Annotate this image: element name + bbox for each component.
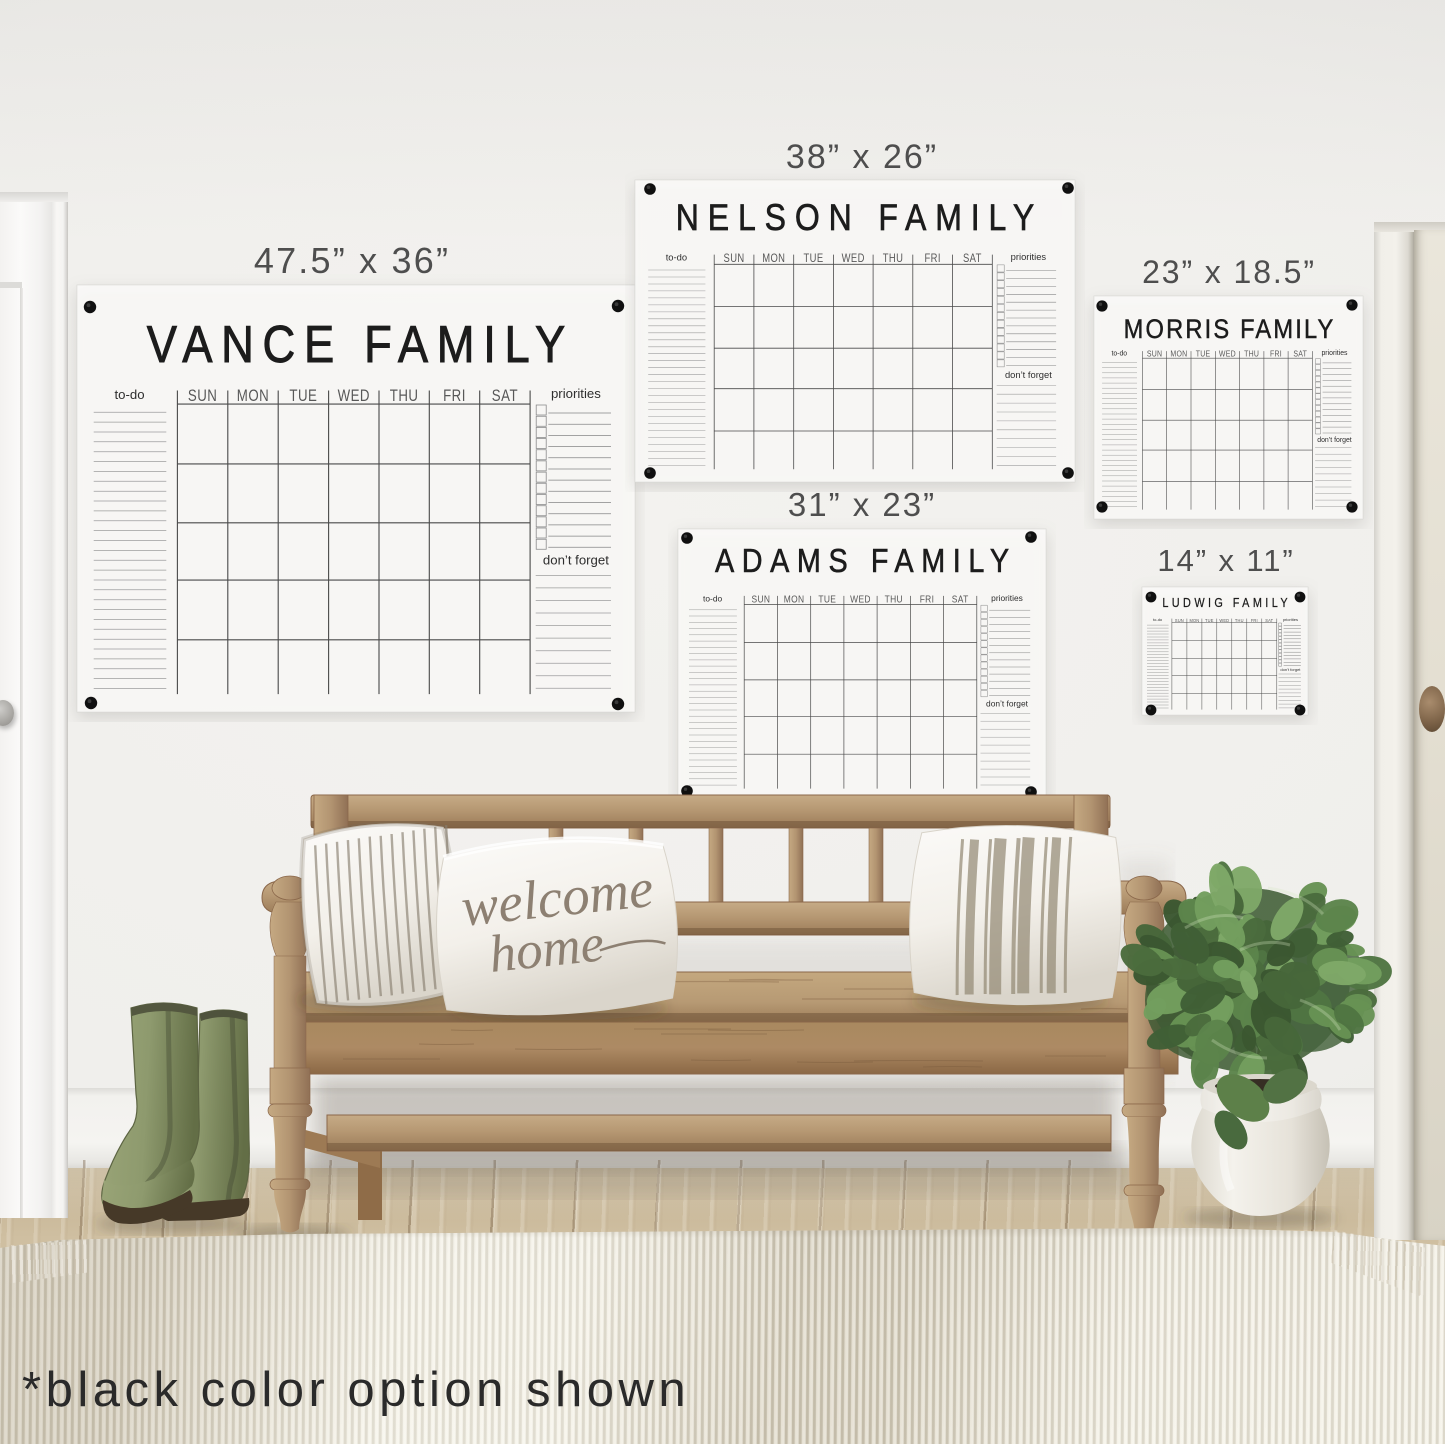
svg-text:home: home <box>486 914 606 984</box>
